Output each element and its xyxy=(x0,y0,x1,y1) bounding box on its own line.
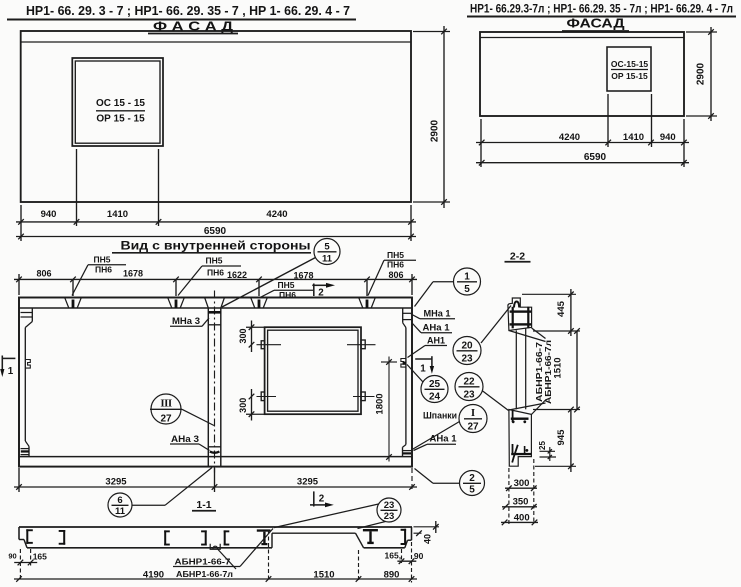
svg-text:МНа 3: МНа 3 xyxy=(172,316,200,326)
svg-text:22: 22 xyxy=(463,377,475,388)
svg-text:5: 5 xyxy=(469,484,475,495)
svg-text:ОС 15 - 15: ОС 15 - 15 xyxy=(96,98,145,109)
svg-text:1622: 1622 xyxy=(227,270,247,280)
svg-text:2: 2 xyxy=(319,494,325,505)
svg-text:1510: 1510 xyxy=(553,357,564,378)
svg-text:2-2: 2-2 xyxy=(510,251,525,263)
svg-text:ОС-15-15: ОС-15-15 xyxy=(611,59,649,69)
svg-text:Вид с внутренней стороны: Вид с внутренней стороны xyxy=(121,239,311,253)
svg-text:АНа 3: АНа 3 xyxy=(171,434,199,444)
svg-text:6590: 6590 xyxy=(204,226,227,237)
svg-text:ФАСАД: ФАСАД xyxy=(567,17,625,31)
svg-text:806: 806 xyxy=(36,269,51,279)
svg-text:940: 940 xyxy=(660,132,676,143)
svg-text:300: 300 xyxy=(514,478,530,489)
svg-text:300: 300 xyxy=(238,328,248,343)
svg-text:НР1- 66.29.3-7л ; НР1- 66.29.: НР1- 66.29.3-7л ; НР1- 66.29. 35 - 7л ; … xyxy=(470,4,733,16)
svg-text:25: 25 xyxy=(538,441,547,450)
svg-text:4190: 4190 xyxy=(143,570,164,581)
svg-text:27: 27 xyxy=(160,414,172,425)
svg-text:АБНР1-66-7: АБНР1-66-7 xyxy=(175,557,231,567)
svg-text:НР1- 66. 29. 3 - 7 ; НР1- 66: НР1- 66. 29. 3 - 7 ; НР1- 66. 29. 35 - 7… xyxy=(26,4,350,18)
svg-text:1-1: 1-1 xyxy=(196,499,211,511)
svg-text:6590: 6590 xyxy=(584,152,607,163)
svg-text:23: 23 xyxy=(463,389,475,400)
svg-text:4240: 4240 xyxy=(559,132,580,143)
svg-text:1678: 1678 xyxy=(293,271,313,281)
svg-text:25: 25 xyxy=(429,379,441,390)
svg-text:23: 23 xyxy=(384,511,395,522)
svg-text:11: 11 xyxy=(115,506,126,517)
svg-text:165: 165 xyxy=(33,552,47,562)
svg-text:5: 5 xyxy=(464,284,470,295)
svg-text:806: 806 xyxy=(388,270,403,280)
svg-text:90: 90 xyxy=(8,552,16,561)
svg-text:23: 23 xyxy=(461,353,473,364)
svg-text:1678: 1678 xyxy=(123,269,143,279)
svg-text:5: 5 xyxy=(324,242,330,253)
svg-text:40: 40 xyxy=(423,534,433,544)
svg-text:300: 300 xyxy=(238,398,248,413)
svg-text:АНа 1: АНа 1 xyxy=(423,322,450,332)
svg-text:1410: 1410 xyxy=(107,209,128,220)
svg-text:350: 350 xyxy=(513,497,529,508)
svg-text:АБНР1-66-7: АБНР1-66-7 xyxy=(535,342,544,402)
svg-text:АНа 1: АНа 1 xyxy=(430,434,457,444)
svg-text:11: 11 xyxy=(322,253,333,264)
svg-text:1410: 1410 xyxy=(623,132,644,143)
svg-text:Шпанки: Шпанки xyxy=(423,411,457,422)
svg-text:2: 2 xyxy=(469,473,475,484)
svg-text:ПН6: ПН6 xyxy=(387,259,404,269)
svg-text:АБНР1-66-7л: АБНР1-66-7л xyxy=(176,569,233,579)
svg-text:890: 890 xyxy=(384,570,400,581)
svg-text:1: 1 xyxy=(8,366,14,377)
svg-text:445: 445 xyxy=(556,300,567,317)
svg-text:6: 6 xyxy=(117,495,122,506)
svg-text:III: III xyxy=(160,398,172,410)
svg-text:ОР 15 - 15: ОР 15 - 15 xyxy=(96,114,145,125)
svg-text:400: 400 xyxy=(514,513,530,524)
svg-text:27: 27 xyxy=(467,422,479,433)
svg-text:4240: 4240 xyxy=(266,209,287,220)
svg-text:3295: 3295 xyxy=(297,477,319,488)
svg-text:ПН6: ПН6 xyxy=(95,265,112,275)
svg-text:20: 20 xyxy=(461,341,473,352)
svg-text:1: 1 xyxy=(464,272,470,283)
svg-text:90: 90 xyxy=(414,551,424,561)
svg-text:165,: 165, xyxy=(385,551,402,561)
svg-text:24: 24 xyxy=(429,391,441,402)
svg-text:945: 945 xyxy=(556,429,567,446)
svg-text:МНа 1: МНа 1 xyxy=(424,308,451,318)
svg-text:ПН5: ПН5 xyxy=(278,280,295,290)
svg-text:3295: 3295 xyxy=(105,477,127,488)
svg-text:2900: 2900 xyxy=(430,119,441,142)
svg-text:АБНР1-66-7л: АБНР1-66-7л xyxy=(544,340,553,404)
svg-text:1510: 1510 xyxy=(313,570,334,581)
svg-text:ПН5: ПН5 xyxy=(94,255,111,265)
svg-text:940: 940 xyxy=(41,209,57,220)
svg-text:1800: 1800 xyxy=(375,393,386,414)
svg-text:АН1: АН1 xyxy=(427,335,445,345)
svg-text:2900: 2900 xyxy=(696,62,707,85)
svg-text:23: 23 xyxy=(384,500,395,511)
svg-text:ПН6: ПН6 xyxy=(207,268,224,278)
svg-text:I: I xyxy=(471,407,475,419)
svg-text:ПН6: ПН6 xyxy=(279,290,296,300)
svg-text:ОР 15-15: ОР 15-15 xyxy=(611,71,648,81)
svg-text:ПН5: ПН5 xyxy=(206,256,223,266)
svg-text:1: 1 xyxy=(420,364,426,375)
